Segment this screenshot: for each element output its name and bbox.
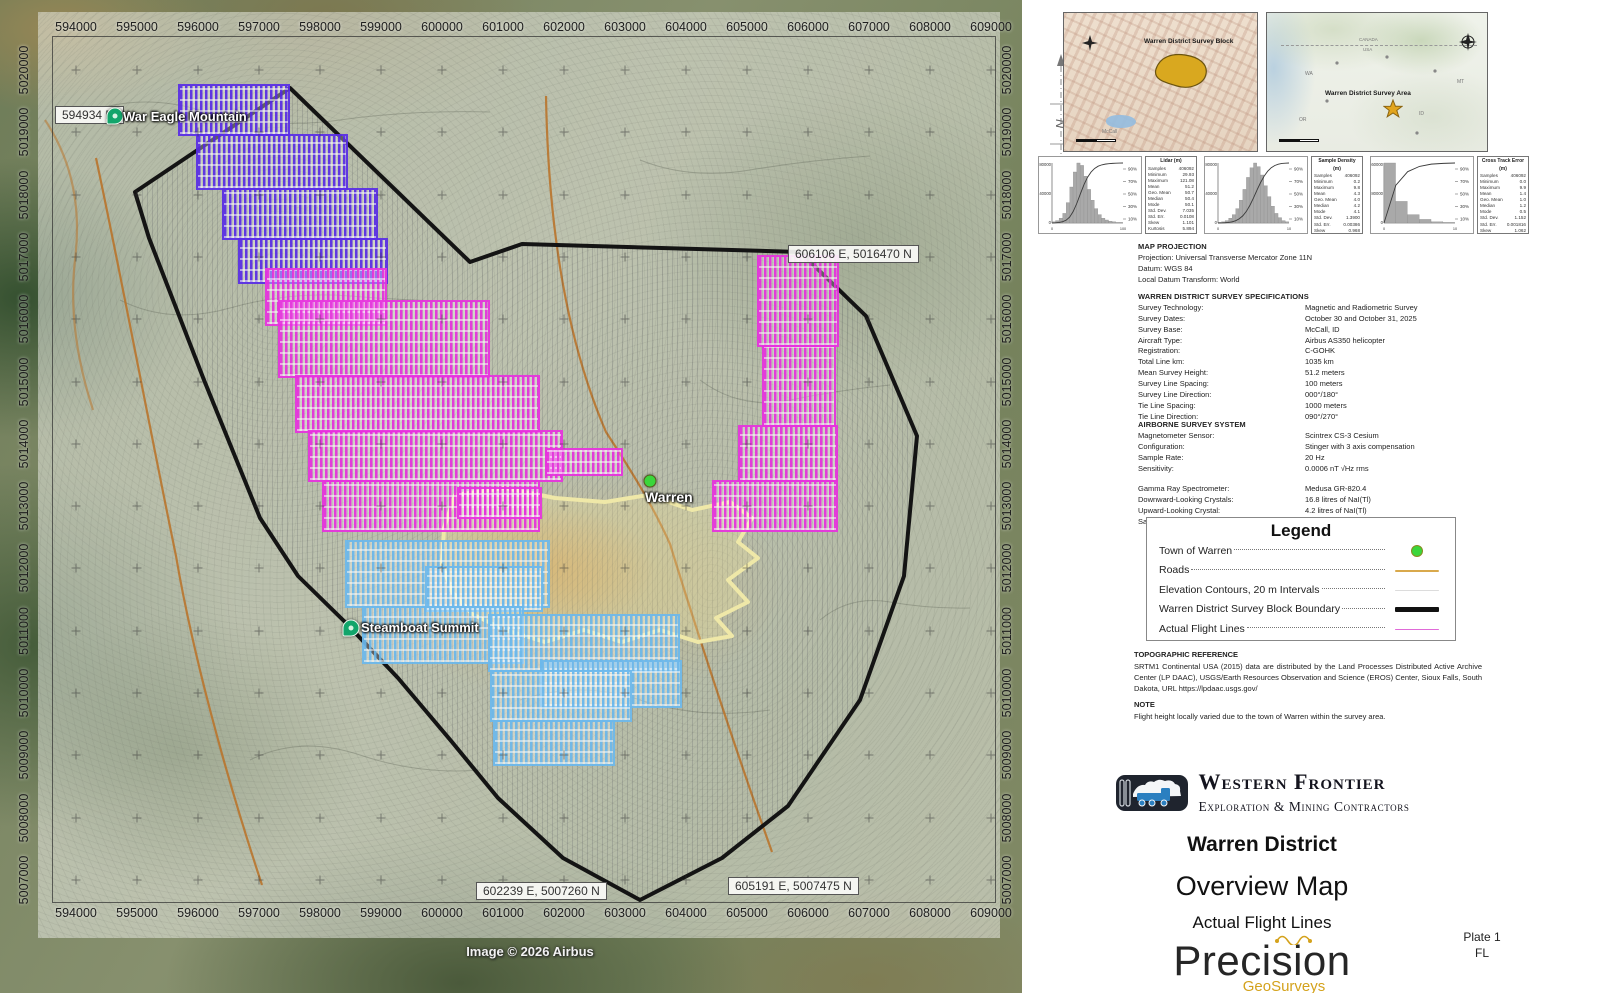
- grid-cross: [499, 502, 508, 511]
- spec-row: Tie Line Spacing:1000 meters: [1138, 401, 1498, 412]
- grid-cross: [621, 689, 630, 698]
- legend-row: Elevation Contours, 20 m Intervals: [1159, 580, 1443, 600]
- grid-cross: [194, 626, 203, 635]
- grid-cross: [133, 564, 142, 573]
- grid-cross: [72, 66, 81, 75]
- map-title-district: Warren District: [1042, 830, 1482, 860]
- easting-tick: 595000: [116, 906, 158, 920]
- grid-cross: [926, 128, 935, 137]
- grid-cross: [804, 190, 813, 199]
- grid-cross: [865, 439, 874, 448]
- svg-text:30%: 30%: [1128, 204, 1137, 209]
- grid-cross: [316, 875, 325, 884]
- spec-row: Aircraft Type:Airbus AS350 helicopter: [1138, 336, 1498, 347]
- northing-tick: 5007000: [17, 856, 31, 905]
- grid-cross: [316, 626, 325, 635]
- histogram-group: 80000 40000 0 90%70%50%30%10% 0 100 Lida…: [1038, 156, 1197, 238]
- survey-block-label: Warren District Survey Block: [1144, 37, 1233, 46]
- grid-cross: [438, 502, 447, 511]
- easting-tick: 606000: [787, 906, 829, 920]
- map-title-type: Overview Map: [1042, 867, 1482, 906]
- svg-text:10: 10: [1453, 227, 1457, 231]
- grid-cross: [377, 252, 386, 261]
- projection-line: Projection: Universal Transverse Mercato…: [1138, 253, 1498, 264]
- grid-cross: [316, 751, 325, 760]
- grid-cross: [72, 875, 81, 884]
- company-subtitle: Exploration & Mining Contractors: [1199, 797, 1410, 817]
- grid-cross: [804, 315, 813, 324]
- grid-cross: [499, 439, 508, 448]
- grid-cross: [194, 813, 203, 822]
- grid-cross: [621, 315, 630, 324]
- grid-cross: [377, 751, 386, 760]
- grid-cross: [499, 813, 508, 822]
- spec-row: Mean Survey Height:51.2 meters: [1138, 368, 1498, 379]
- map-neatline: [52, 36, 996, 903]
- grid-cross: [743, 813, 752, 822]
- grid-cross: [72, 128, 81, 137]
- grid-cross: [377, 564, 386, 573]
- grid-cross: [621, 252, 630, 261]
- grid-cross: [377, 439, 386, 448]
- grid-cross: [804, 377, 813, 386]
- grid-cross: [499, 128, 508, 137]
- easting-tick: 607000: [848, 20, 890, 34]
- easting-tick: 594000: [55, 20, 97, 34]
- grid-cross: [255, 190, 264, 199]
- grid-cross: [438, 439, 447, 448]
- grid-cross: [987, 626, 996, 635]
- easting-tick: 606000: [787, 20, 829, 34]
- grid-cross: [377, 128, 386, 137]
- grid-cross: [621, 439, 630, 448]
- svg-text:70%: 70%: [1460, 179, 1469, 184]
- lake-label: McCall: [1102, 129, 1117, 136]
- grid-cross: [926, 502, 935, 511]
- svg-text:100: 100: [1120, 227, 1126, 231]
- grid-cross: [804, 128, 813, 137]
- contour-line-symbol: [1391, 590, 1443, 591]
- grid-cross: [804, 813, 813, 822]
- easting-tick: 595000: [116, 20, 158, 34]
- grid-cross: [438, 689, 447, 698]
- grid-cross: [194, 315, 203, 324]
- easting-tick: 596000: [177, 906, 219, 920]
- grid-cross: [499, 66, 508, 75]
- inset2-scale-bar: [1279, 139, 1319, 142]
- northing-tick: 5016000: [17, 295, 31, 344]
- svg-text:0: 0: [1383, 227, 1385, 231]
- easting-tick: 598000: [299, 906, 341, 920]
- grid-cross: [804, 689, 813, 698]
- grid-cross: [926, 751, 935, 760]
- svg-text:90%: 90%: [1460, 167, 1469, 172]
- grid-cross: [682, 564, 691, 573]
- easting-tick: 607000: [848, 906, 890, 920]
- histogram-group: 160000 80000 0 90%70%50%30%10% 0 10 Cros…: [1370, 156, 1529, 238]
- grid-cross: [560, 751, 569, 760]
- grid-cross: [316, 813, 325, 822]
- section-heading: AIRBORNE SURVEY SYSTEM: [1138, 420, 1498, 431]
- grid-cross: [316, 564, 325, 573]
- grid-cross: [194, 190, 203, 199]
- grid-cross: [743, 689, 752, 698]
- survey-area-star-icon: [1383, 99, 1403, 119]
- spec-row: Survey Line Direction:000°/180°: [1138, 390, 1498, 401]
- grid-cross: [987, 689, 996, 698]
- grid-cross: [255, 128, 264, 137]
- grid-cross: [987, 813, 996, 822]
- grid-cross: [987, 751, 996, 760]
- svg-text:10%: 10%: [1128, 217, 1137, 222]
- easting-tick: 594000: [55, 906, 97, 920]
- road-line-symbol: [1391, 570, 1443, 572]
- grid-cross: [72, 377, 81, 386]
- grid-cross: [316, 377, 325, 386]
- grid-cross: [133, 813, 142, 822]
- map-title-subject: Actual Flight Lines: [1042, 911, 1482, 936]
- grid-cross: [682, 813, 691, 822]
- grid-cross: [926, 626, 935, 635]
- northing-tick: 5013000: [17, 482, 31, 531]
- grid-cross: [72, 252, 81, 261]
- grid-cross: [133, 439, 142, 448]
- svg-text:0: 0: [1217, 227, 1219, 231]
- spec-row: Upward-Looking Crystal:4.2 litres of NaI…: [1138, 506, 1498, 517]
- spec-row: Downward-Looking Crystals:16.8 litres of…: [1138, 495, 1498, 506]
- grid-cross: [621, 502, 630, 511]
- grid-cross: [804, 439, 813, 448]
- grid-cross: [194, 564, 203, 573]
- grid-cross: [926, 875, 935, 884]
- grid-cross: [560, 502, 569, 511]
- compass-rose-icon: [1082, 35, 1098, 51]
- svg-text:10%: 10%: [1294, 217, 1303, 222]
- histogram-group: 80000 40000 0 90%70%50%30%10% 0 10 Sampl…: [1204, 156, 1363, 238]
- legend-title: Legend: [1159, 521, 1443, 541]
- grid-cross: [499, 190, 508, 199]
- border-line: [1281, 45, 1477, 46]
- histogram-plot: 160000 80000 0 90%70%50%30%10% 0 10: [1370, 156, 1474, 238]
- grid-cross: [133, 751, 142, 760]
- grid-cross: [804, 751, 813, 760]
- grid-cross: [72, 813, 81, 822]
- grid-cross: [377, 875, 386, 884]
- grid-cross: [438, 813, 447, 822]
- grid-cross: [133, 252, 142, 261]
- northing-tick: 5014000: [17, 419, 31, 468]
- surveyor-subtitle: GeoSurveys: [1195, 976, 1372, 993]
- northing-tick: 5008000: [1000, 793, 1014, 842]
- map-projection-section: MAP PROJECTION Projection: Universal Tra…: [1138, 242, 1498, 286]
- grid-cross: [926, 190, 935, 199]
- grid-cross: [438, 875, 447, 884]
- grid-cross: [194, 751, 203, 760]
- state-label: ID: [1419, 111, 1424, 118]
- grid-cross: [865, 66, 874, 75]
- grid-cross: [743, 626, 752, 635]
- grid-cross: [438, 190, 447, 199]
- histogram-stats-box: Lidar (m)Samples406092Minimum29.93Maximu…: [1145, 156, 1197, 234]
- grid-cross: [621, 626, 630, 635]
- plate-code: FL: [1442, 946, 1522, 962]
- inset-survey-block-map: Warren District Survey Block McCall: [1063, 12, 1258, 152]
- easting-tick: 597000: [238, 20, 280, 34]
- survey-block-polygon: [1154, 51, 1212, 93]
- grid-cross: [682, 689, 691, 698]
- grid-cross: [377, 502, 386, 511]
- grid-cross: [133, 502, 142, 511]
- northing-tick: 5019000: [17, 108, 31, 157]
- grid-cross: [926, 689, 935, 698]
- easting-tick: 602000: [543, 906, 585, 920]
- company-logo: [1115, 774, 1189, 812]
- svg-text:90%: 90%: [1294, 167, 1303, 172]
- surveyor-wave-icon: [1273, 933, 1317, 945]
- svg-text:0: 0: [1215, 220, 1218, 225]
- grid-cross: [316, 128, 325, 137]
- boundary-line-symbol: [1391, 607, 1443, 612]
- grid-cross: [194, 875, 203, 884]
- grid-cross: [560, 190, 569, 199]
- place-label: Steamboat Summit: [361, 620, 479, 635]
- grid-cross: [255, 875, 264, 884]
- svg-text:10%: 10%: [1460, 217, 1469, 222]
- northing-tick: 5016000: [1000, 295, 1014, 344]
- spec-row: Gamma Ray Spectrometer:Medusa GR-820.4: [1138, 484, 1498, 495]
- grid-cross: [743, 252, 752, 261]
- grid-cross: [682, 190, 691, 199]
- northing-tick: 5019000: [1000, 108, 1014, 157]
- stats-row: Kurtosis5.894: [1148, 226, 1194, 232]
- grid-cross: [316, 252, 325, 261]
- section-heading: TOPOGRAPHIC REFERENCE: [1134, 650, 1482, 661]
- grid-cross: [499, 751, 508, 760]
- grid-cross: [865, 190, 874, 199]
- note-section: NOTE Flight height locally varied due to…: [1134, 700, 1482, 723]
- grid-cross: [377, 377, 386, 386]
- easting-tick: 609000: [970, 906, 1012, 920]
- grid-cross: [194, 66, 203, 75]
- grid-cross: [987, 315, 996, 324]
- grid-cross: [743, 564, 752, 573]
- northing-tick: 5007000: [1000, 856, 1014, 905]
- map-plate: 5940005940005950005950005960005960005970…: [0, 0, 1600, 993]
- grid-cross: [194, 128, 203, 137]
- grid-cross: [987, 439, 996, 448]
- legend-row: Actual Flight Lines: [1159, 619, 1443, 639]
- section-heading: MAP PROJECTION: [1138, 242, 1498, 253]
- northing-tick: 5020000: [17, 46, 31, 95]
- easting-tick: 600000: [421, 906, 463, 920]
- grid-cross: [987, 128, 996, 137]
- spec-row: Total Line km:1035 km: [1138, 357, 1498, 368]
- northing-tick: 5020000: [1000, 46, 1014, 95]
- easting-tick: 608000: [909, 906, 951, 920]
- easting-tick: 609000: [970, 20, 1012, 34]
- grid-cross: [194, 502, 203, 511]
- northing-tick: 5012000: [1000, 544, 1014, 593]
- grid-cross: [194, 377, 203, 386]
- easting-tick: 603000: [604, 906, 646, 920]
- histogram-plot: 80000 40000 0 90%70%50%30%10% 0 10: [1204, 156, 1308, 238]
- grid-cross: [682, 315, 691, 324]
- survey-specifications-section: WARREN DISTRICT SURVEY SPECIFICATIONS Su…: [1138, 292, 1498, 423]
- northing-tick: 5011000: [1000, 607, 1014, 655]
- northing-tick: 5017000: [1000, 233, 1014, 282]
- grid-cross: [255, 813, 264, 822]
- easting-tick: 597000: [238, 906, 280, 920]
- city-dots: [1267, 13, 1488, 152]
- airborne-system-section: AIRBORNE SURVEY SYSTEM Magnetometer Sens…: [1138, 420, 1498, 528]
- grid-cross: [865, 502, 874, 511]
- northing-tick: 5012000: [17, 544, 31, 593]
- grid-cross: [72, 190, 81, 199]
- flight-line-symbol: [1391, 629, 1443, 630]
- grid-cross: [682, 626, 691, 635]
- grid-cross: [682, 751, 691, 760]
- state-label: MT: [1457, 79, 1464, 86]
- grid-cross: [377, 190, 386, 199]
- grid-cross: [682, 252, 691, 261]
- grid-cross: [438, 128, 447, 137]
- main-map: 5940005940005950005950005960005960005970…: [0, 0, 1022, 993]
- easting-tick: 602000: [543, 20, 585, 34]
- grid-cross: [926, 813, 935, 822]
- town-dot-symbol: [1391, 545, 1443, 557]
- grid-cross: [255, 66, 264, 75]
- easting-tick: 605000: [726, 906, 768, 920]
- grid-cross: [438, 66, 447, 75]
- easting-tick: 598000: [299, 20, 341, 34]
- grid-cross: [255, 502, 264, 511]
- grid-cross: [743, 315, 752, 324]
- svg-text:50%: 50%: [1128, 192, 1137, 197]
- grid-cross: [865, 315, 874, 324]
- easting-tick: 599000: [360, 20, 402, 34]
- svg-text:30%: 30%: [1460, 204, 1469, 209]
- northing-tick: 5018000: [1000, 170, 1014, 219]
- legend-row: Warren District Survey Block Boundary: [1159, 600, 1443, 620]
- northing-tick: 5013000: [1000, 482, 1014, 531]
- grid-cross: [987, 377, 996, 386]
- section-heading: NOTE: [1134, 700, 1482, 711]
- grid-cross: [560, 66, 569, 75]
- topographic-reference-section: TOPOGRAPHIC REFERENCE SRTM1 Continental …: [1134, 650, 1482, 695]
- grid-cross: [72, 502, 81, 511]
- easting-tick: 596000: [177, 20, 219, 34]
- grid-cross: [499, 252, 508, 261]
- svg-text:0: 0: [1381, 220, 1384, 225]
- grid-cross: [255, 439, 264, 448]
- grid-cross: [682, 875, 691, 884]
- grid-cross: [133, 875, 142, 884]
- spec-row: Survey Base:McCall, ID: [1138, 325, 1498, 336]
- grid-cross: [926, 439, 935, 448]
- grid-cross: [682, 128, 691, 137]
- place-marker-dot: [644, 475, 657, 488]
- grid-cross: [72, 315, 81, 324]
- stats-title: Cross Track Error (m): [1480, 158, 1526, 173]
- grid-cross: [621, 875, 630, 884]
- grid-cross: [316, 439, 325, 448]
- histogram-stats-box: Cross Track Error (m)Samples406092Minimu…: [1477, 156, 1529, 234]
- histogram-stats-box: Sample Density (m)Samples406092Minimum0.…: [1311, 156, 1363, 234]
- easting-tick: 601000: [482, 20, 524, 34]
- northing-tick: 5010000: [1000, 669, 1014, 718]
- country-label-canada: CANADA: [1359, 37, 1378, 44]
- spec-row: Survey Dates:October 30 and October 31, …: [1138, 314, 1498, 325]
- grid-cross: [72, 564, 81, 573]
- plate-number: Plate 1 FL: [1442, 930, 1522, 961]
- grid-cross: [865, 564, 874, 573]
- svg-text:70%: 70%: [1128, 179, 1137, 184]
- qc-histogram-strip: 80000 40000 0 90%70%50%30%10% 0 100 Lida…: [1038, 156, 1520, 238]
- northing-tick: 5014000: [1000, 419, 1014, 468]
- company-name: Western Frontier: [1199, 770, 1410, 794]
- grid-cross: [865, 128, 874, 137]
- grid-cross: [72, 626, 81, 635]
- grid-cross: [255, 252, 264, 261]
- easting-tick: 604000: [665, 906, 707, 920]
- grid-cross: [499, 626, 508, 635]
- easting-tick: 600000: [421, 20, 463, 34]
- spec-row: Survey Technology:Magnetic and Radiometr…: [1138, 303, 1498, 314]
- grid-cross: [255, 751, 264, 760]
- grid-cross: [621, 564, 630, 573]
- place-label: Warren: [645, 489, 693, 505]
- grid-cross: [743, 502, 752, 511]
- grid-cross: [743, 377, 752, 386]
- northing-tick: 5009000: [1000, 731, 1014, 780]
- grid-cross: [743, 439, 752, 448]
- svg-text:90%: 90%: [1128, 167, 1137, 172]
- grid-cross: [621, 751, 630, 760]
- datum-line: Datum: WGS 84: [1138, 264, 1498, 275]
- grid-cross: [865, 813, 874, 822]
- grid-cross: [377, 315, 386, 324]
- svg-text:0: 0: [1051, 227, 1053, 231]
- grid-cross: [438, 252, 447, 261]
- compass-rose-icon: [1459, 33, 1477, 51]
- easting-tick: 601000: [482, 906, 524, 920]
- grid-cross: [987, 252, 996, 261]
- place-marker-pin: [107, 108, 124, 125]
- grid-cross: [682, 66, 691, 75]
- easting-tick: 604000: [665, 20, 707, 34]
- svg-text:160000: 160000: [1370, 162, 1384, 167]
- grid-cross: [865, 377, 874, 386]
- coordinate-callout: 606106 E, 5016470 N: [788, 245, 919, 263]
- easting-tick: 608000: [909, 20, 951, 34]
- grid-cross: [194, 689, 203, 698]
- grid-cross: [316, 190, 325, 199]
- svg-text:50%: 50%: [1294, 192, 1303, 197]
- place-label: War Eagle Mountain: [123, 109, 247, 124]
- legend-box: Legend Town of WarrenRoadsElevation Cont…: [1146, 517, 1456, 641]
- info-panel: N Warren District Survey Block McCall: [1022, 0, 1600, 993]
- grid-cross: [621, 128, 630, 137]
- grid-cross: [560, 626, 569, 635]
- svg-text:0: 0: [1049, 220, 1052, 225]
- grid-cross: [560, 439, 569, 448]
- grid-cross: [133, 315, 142, 324]
- grid-cross: [987, 190, 996, 199]
- grid-cross: [377, 689, 386, 698]
- grid-cross: [682, 377, 691, 386]
- northing-tick: 5011000: [17, 607, 31, 655]
- stats-title: Lidar (m): [1148, 158, 1194, 166]
